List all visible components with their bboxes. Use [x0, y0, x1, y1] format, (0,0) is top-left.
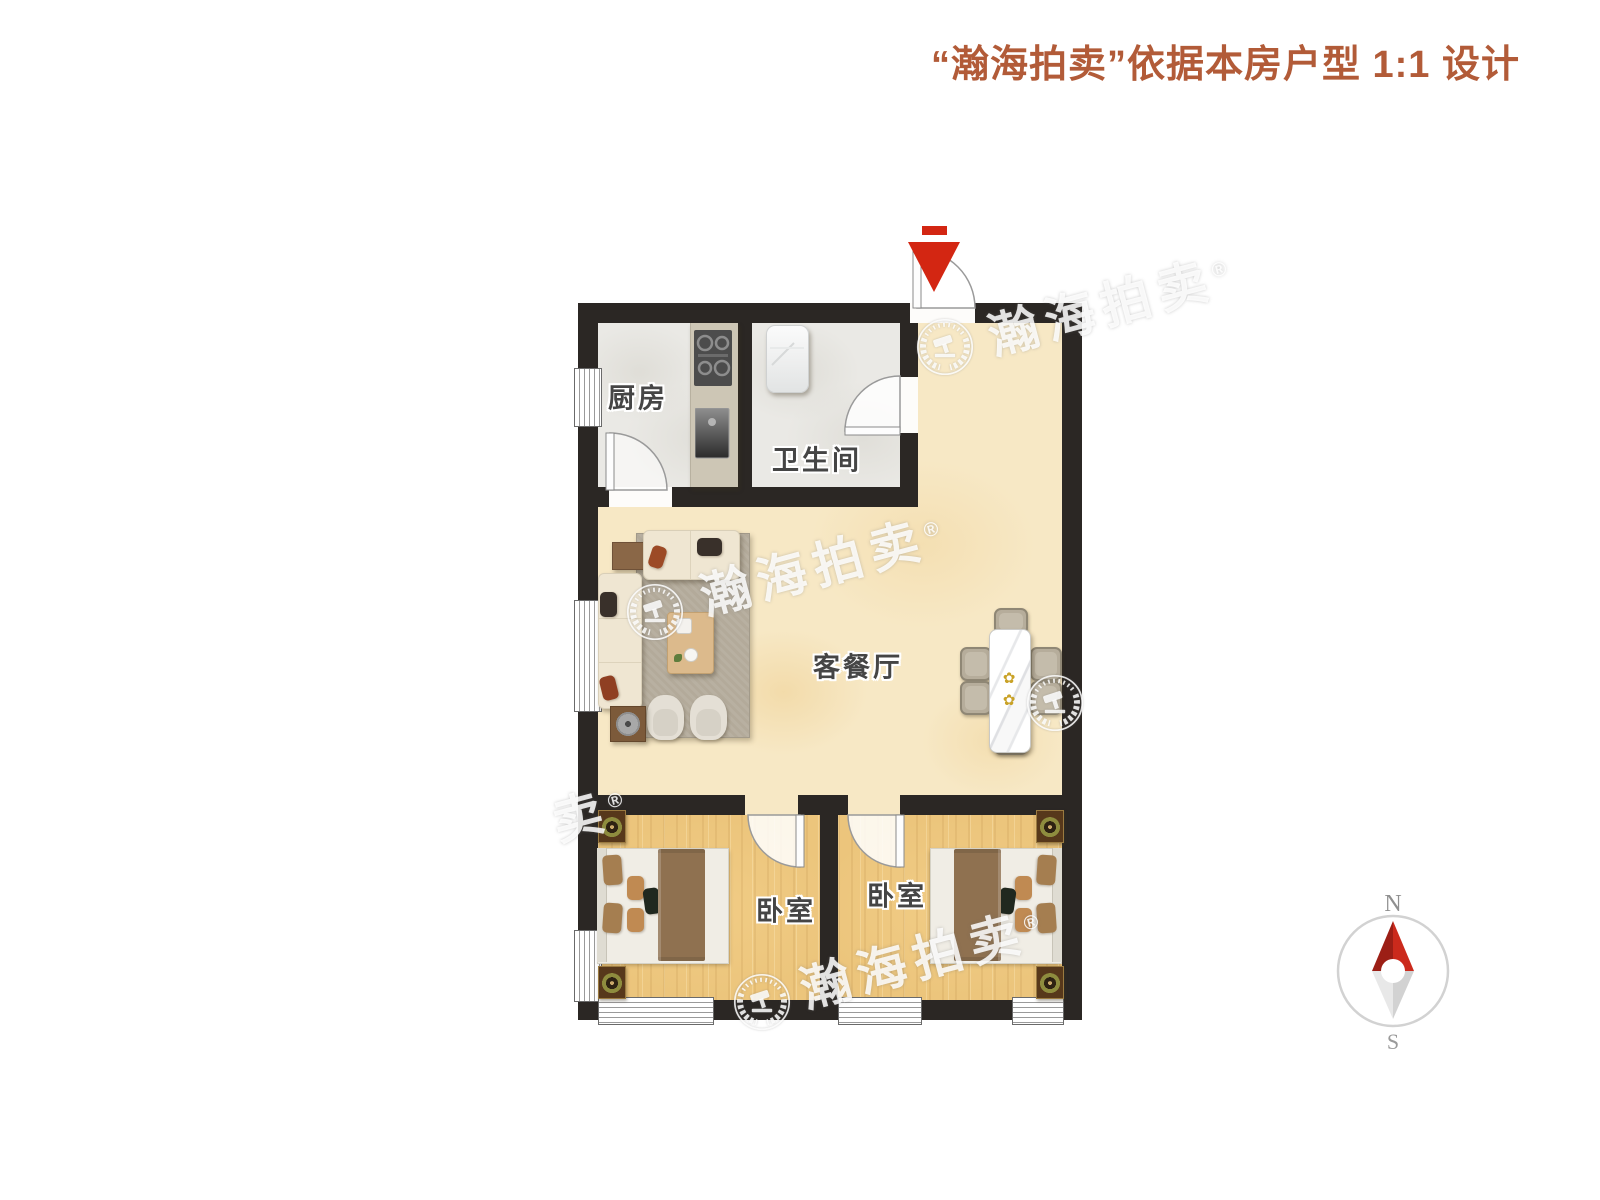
- watermark-logo: [728, 968, 796, 1036]
- room-label-bedroom-left: 卧室: [756, 890, 816, 929]
- room-label-bedroom-right: 卧室: [867, 875, 927, 914]
- watermark-logo: [1021, 669, 1089, 737]
- floorplan-page: “瀚海拍卖”依据本房户型 1:1 设计: [0, 0, 1600, 1200]
- door-panel: [896, 815, 904, 867]
- door-swing: [610, 433, 667, 490]
- compass-north-label: N: [1384, 891, 1401, 917]
- compass-south-label: S: [1387, 1029, 1399, 1054]
- watermark-logo: [621, 578, 689, 646]
- compass: N S: [1330, 885, 1460, 1055]
- door-panel: [796, 815, 804, 867]
- room-label-living-dining: 客餐厅: [813, 646, 903, 685]
- door-panel: [606, 433, 614, 490]
- room-label-bathroom: 卫生间: [772, 439, 862, 478]
- door-swing: [845, 376, 900, 431]
- door-panel: [845, 427, 900, 435]
- door-swing: [748, 815, 800, 867]
- door-swing: [848, 815, 900, 867]
- compass-hub: [1381, 959, 1405, 983]
- watermark-logo: [911, 313, 979, 381]
- room-label-kitchen: 厨房: [608, 377, 668, 416]
